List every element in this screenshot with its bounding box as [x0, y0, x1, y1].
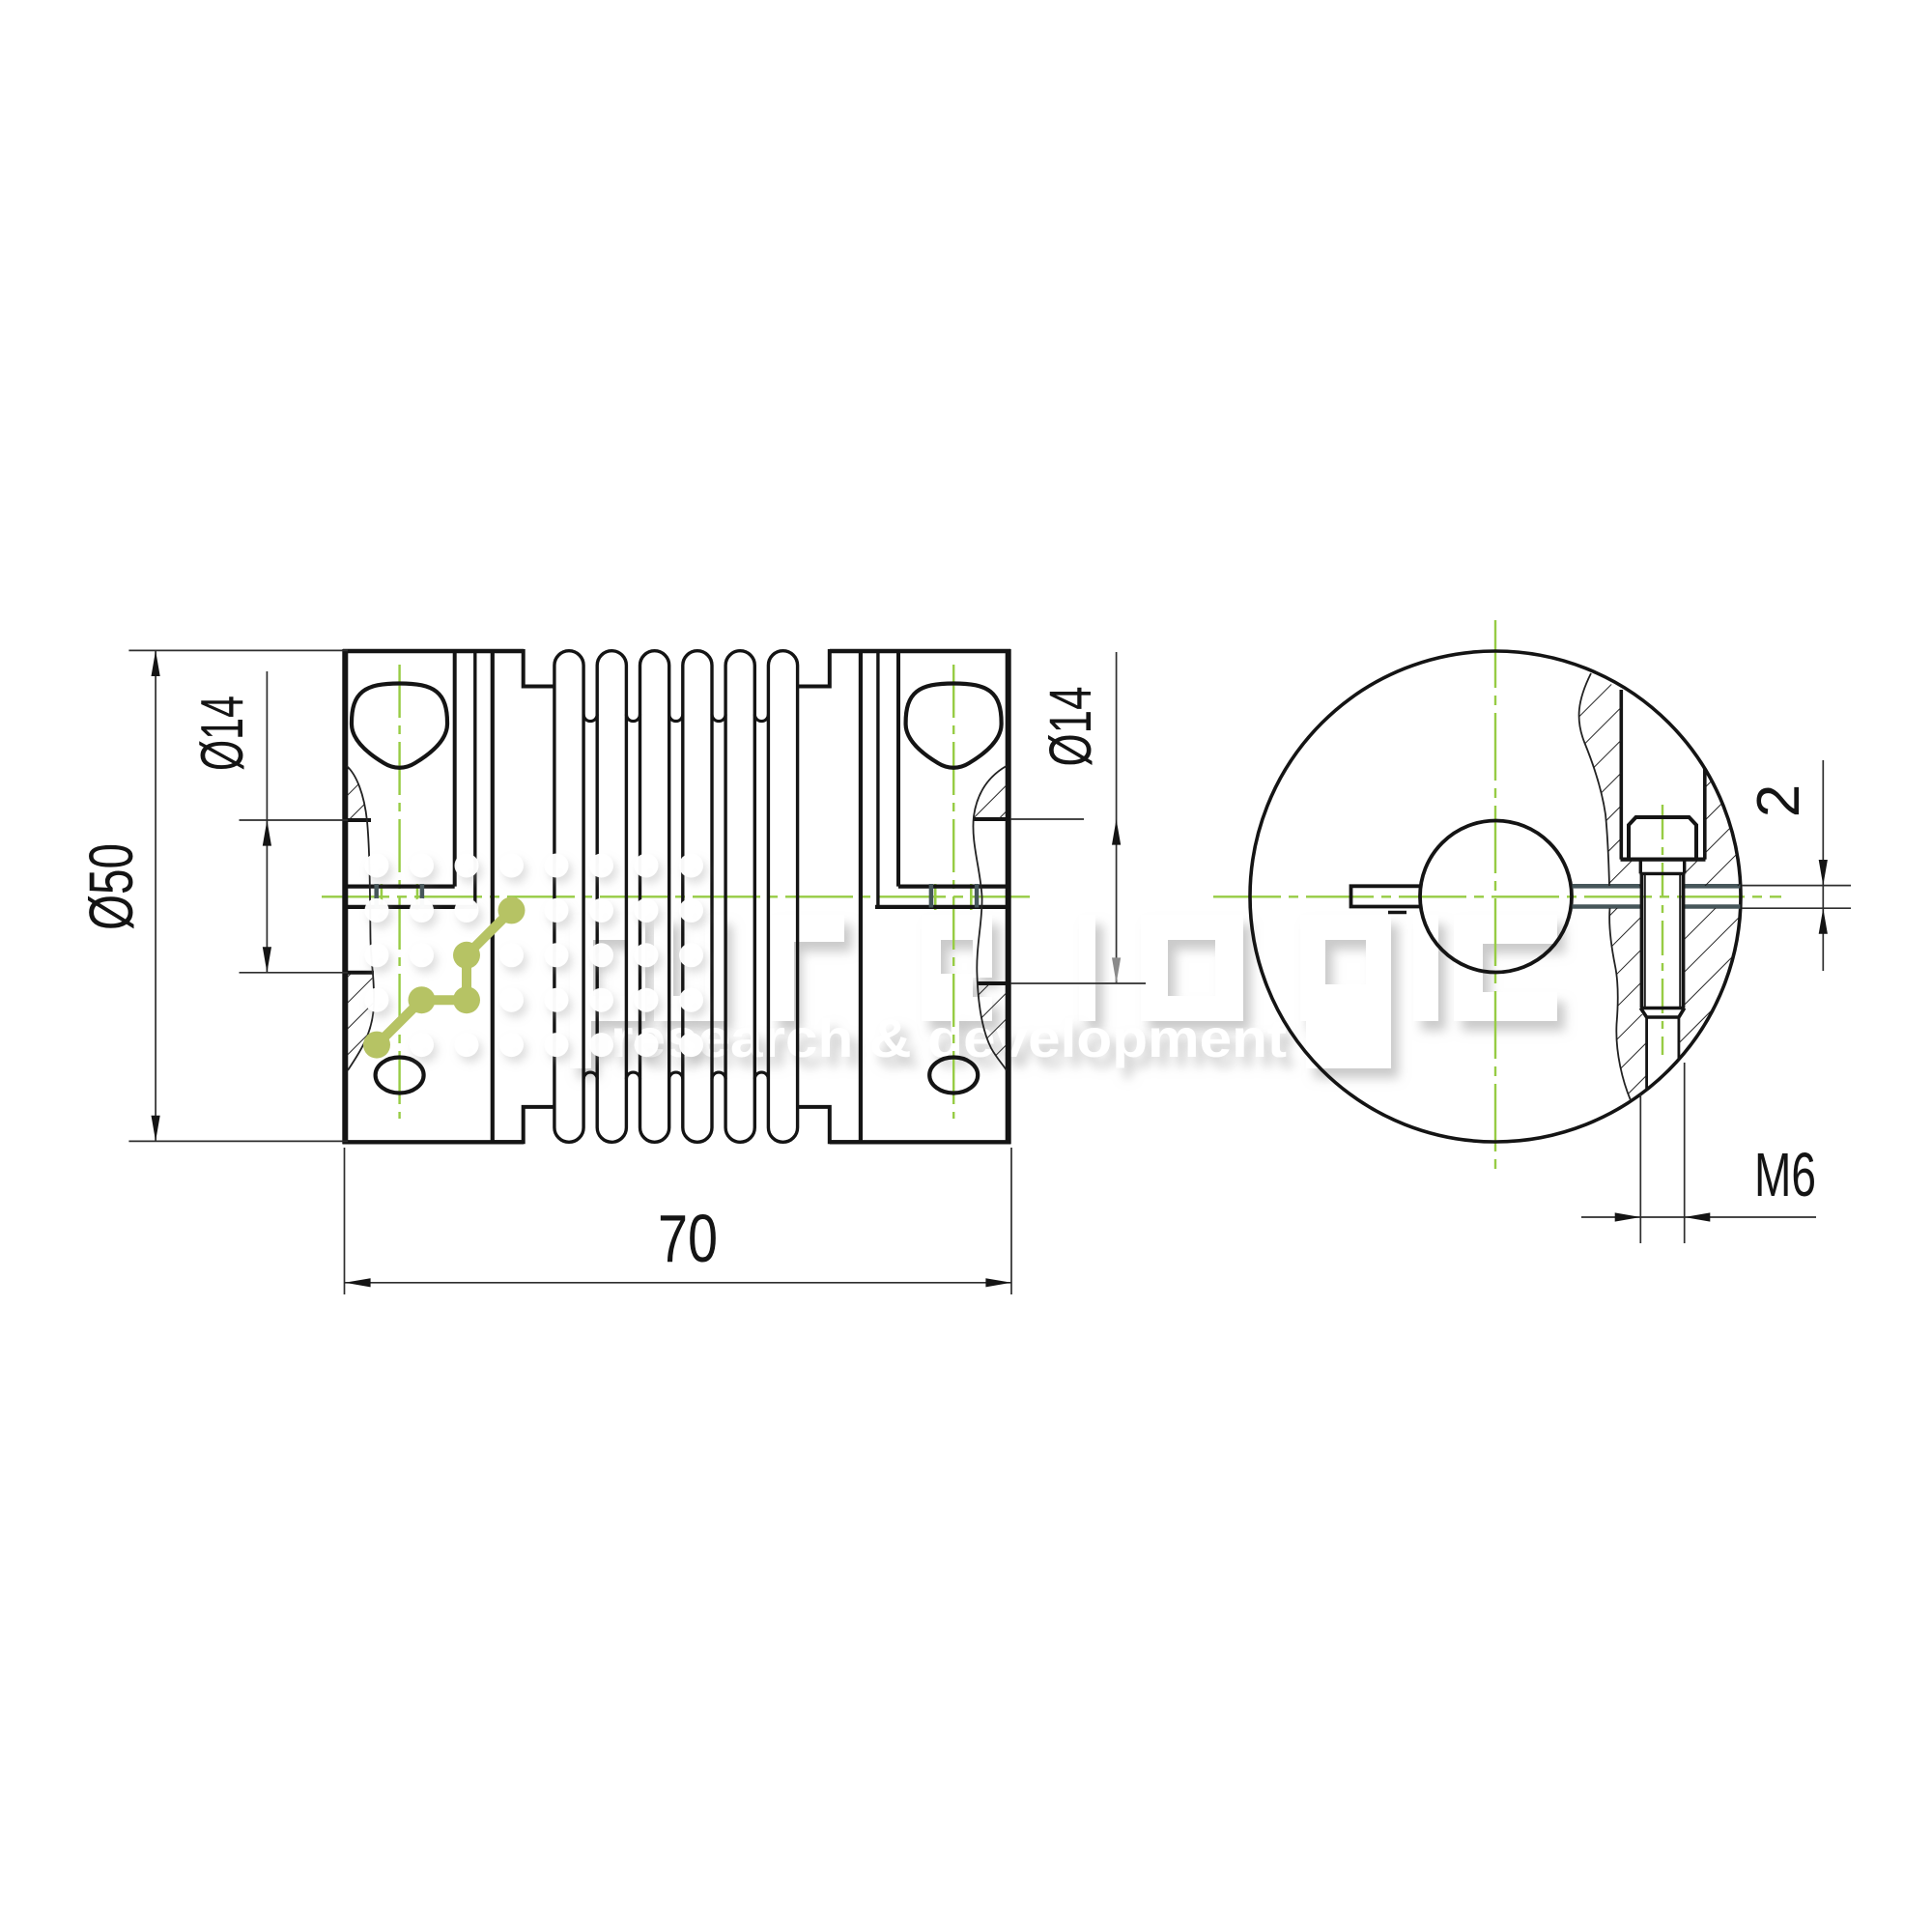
- svg-text:2: 2: [1746, 784, 1812, 817]
- svg-text:M6: M6: [1754, 1140, 1816, 1209]
- svg-text:Ø14: Ø14: [1037, 687, 1103, 767]
- svg-text:70: 70: [658, 1201, 718, 1276]
- svg-text:Ø14: Ø14: [189, 696, 256, 771]
- svg-text:Ø50: Ø50: [76, 843, 146, 930]
